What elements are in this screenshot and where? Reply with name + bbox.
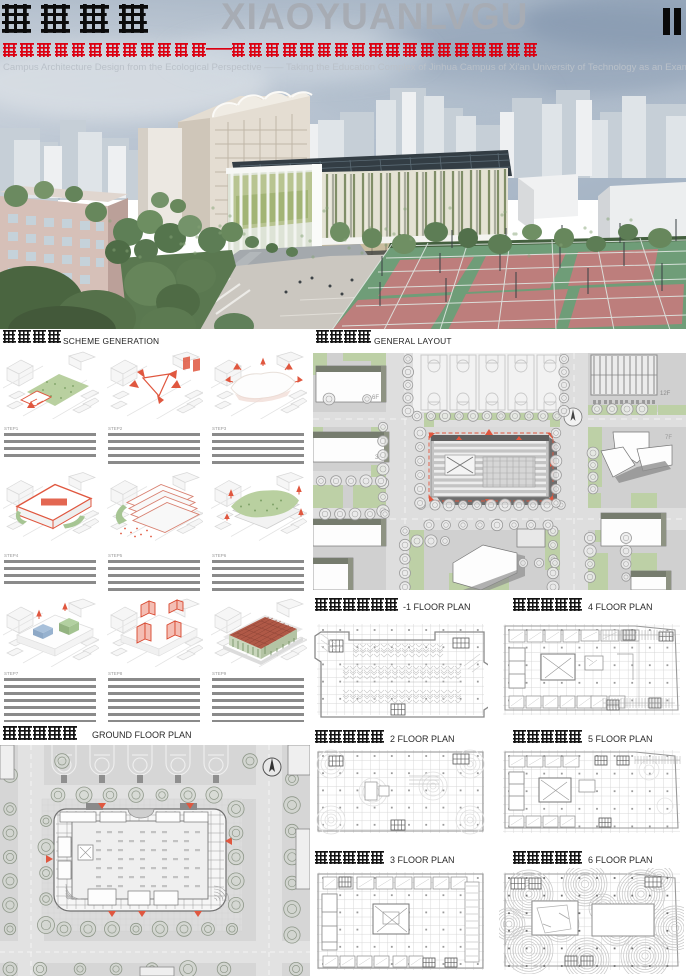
svg-text:7F: 7F [665,435,672,441]
svg-text:12F: 12F [660,391,671,397]
svg-text:6F: 6F [372,395,379,401]
